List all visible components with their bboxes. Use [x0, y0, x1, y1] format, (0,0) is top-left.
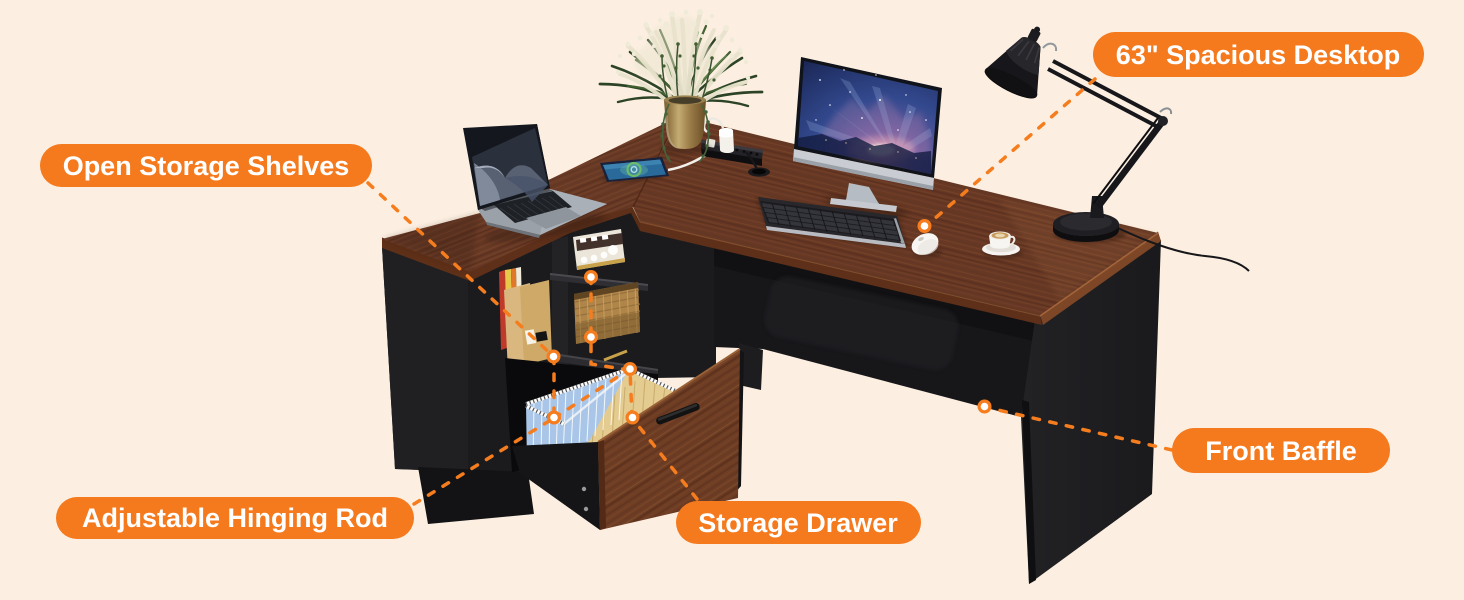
- svg-text:Open Storage Shelves: Open Storage Shelves: [63, 151, 350, 181]
- svg-text:Front Baffle: Front Baffle: [1205, 436, 1357, 466]
- svg-text:Storage Drawer: Storage Drawer: [698, 508, 898, 538]
- svg-text:63" Spacious Desktop: 63" Spacious Desktop: [1116, 40, 1400, 70]
- svg-text:Adjustable Hinging Rod: Adjustable Hinging Rod: [82, 503, 388, 533]
